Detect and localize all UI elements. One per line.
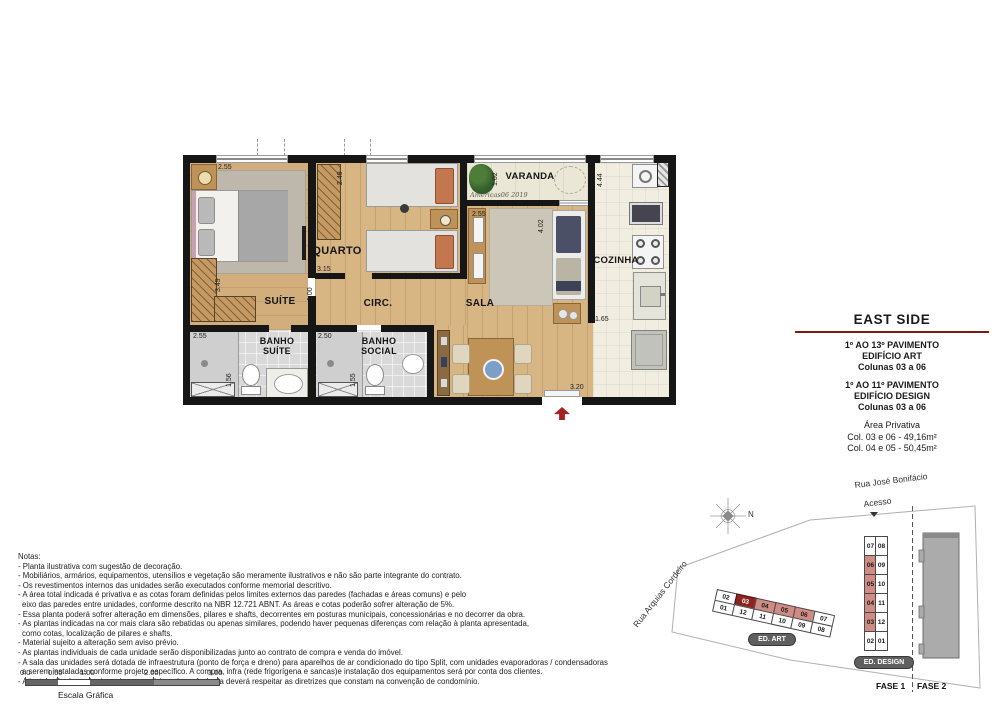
- projection-line: [257, 139, 258, 156]
- phase2-label: FASE 2: [917, 681, 946, 691]
- dim-quarto-depth: 3.15: [317, 266, 331, 273]
- dim-banho-suite-depth: 1.56: [226, 367, 233, 387]
- page-title: EAST SIDE: [793, 312, 991, 327]
- unit-cell: 09: [875, 555, 888, 575]
- note-line: como cotas, localização de pilares e sha…: [18, 629, 628, 639]
- entrance-door: [544, 390, 580, 397]
- wall: [427, 325, 434, 398]
- toilet: [366, 364, 384, 386]
- dim-banho-social-width: 2.50: [318, 333, 332, 340]
- ed-design-building: 07 06 05 04 03 02 08 09 10 11 12 01: [864, 536, 887, 650]
- wall: [183, 397, 676, 405]
- note-line: - Material sujeito a alteração sem aviso…: [18, 638, 628, 648]
- ed-design-label: ED. DESIGN: [854, 656, 914, 669]
- fase2-building: [919, 533, 959, 658]
- note-line: - Essa planta poderá sofrer alteração em…: [18, 610, 628, 620]
- note-line: - As plantas indicadas na cor mais clara…: [18, 619, 628, 629]
- note-line: - Planta ilustrativa com sugestão de dec…: [18, 562, 628, 572]
- sala-tv-console: [468, 208, 486, 284]
- vanity: [266, 368, 308, 398]
- title-rule: [795, 331, 989, 333]
- room-label-circ: CIRC.: [358, 298, 398, 310]
- window: [216, 155, 288, 163]
- round-sink: [402, 354, 424, 374]
- wall: [291, 325, 357, 332]
- building1-name: EDIFÍCIO ART: [793, 351, 991, 362]
- ed-art-label: ED. ART: [748, 633, 796, 646]
- dim-suite-depth: 3.49: [215, 272, 222, 292]
- scale-bar: 0.0 0.50 1.00 2.00 3.00 Escala Gráfica: [18, 668, 248, 704]
- note-line: - A sala das unidades será dotada de inf…: [18, 658, 628, 668]
- notes-heading: Notas:: [18, 552, 628, 562]
- dining-chair: [452, 374, 470, 394]
- quarto-nightstand: [430, 209, 458, 229]
- window: [366, 155, 408, 163]
- dim-banho-social-depth: 1.55: [350, 367, 357, 387]
- room-label-banho-suite: BANHO SUÍTE: [248, 336, 306, 357]
- scale-tick-label: 3.00: [208, 668, 223, 677]
- wall: [460, 155, 467, 279]
- wall: [467, 200, 559, 206]
- wall: [183, 325, 269, 332]
- note-line: eixo das paredes entre unidades, conform…: [18, 600, 628, 610]
- area-privativa-title: Área Privativa: [793, 420, 991, 432]
- building1-pavimento: 1º AO 13º PAVIMENTO: [793, 340, 991, 351]
- dim-cozinha-depth: 4.44: [597, 167, 604, 187]
- page: Americas06 2019: [0, 0, 1000, 707]
- illustration-signature: Americas06 2019: [470, 191, 528, 199]
- compass-icon: [710, 498, 746, 534]
- scale-tick-label: 0.0: [20, 668, 30, 677]
- unit-cell: 01: [875, 631, 888, 651]
- note-line: - As plantas individuais de cada unidade…: [18, 648, 628, 658]
- building2-colunas: Colunas 03 a 06: [793, 402, 991, 413]
- dining-table: [468, 338, 514, 396]
- site-map: Rua José Bonifácio Acesso Rua Arquias Co…: [620, 478, 1000, 707]
- unit-cell: 12: [875, 612, 888, 632]
- entrance-gap: [542, 397, 582, 405]
- dim-quarto-width: 2.49: [337, 165, 344, 185]
- wall: [308, 330, 316, 398]
- varanda-railing: [474, 155, 586, 163]
- shower-glass: [238, 332, 239, 398]
- scale-tick-label: 1.00: [80, 668, 95, 677]
- building1-colunas: Colunas 03 a 06: [793, 362, 991, 373]
- note-line: - Mobiliários, armários, equipamentos, u…: [18, 571, 628, 581]
- unit-cell: 11: [875, 593, 888, 613]
- toilet-tank: [365, 386, 385, 395]
- shower-head-icon: [201, 360, 208, 367]
- dim-varanda-depth: 1.02: [492, 166, 499, 186]
- dim-entrada: 3.20: [570, 384, 584, 391]
- toilet-tank: [241, 386, 261, 395]
- sala-sofa: [552, 210, 586, 300]
- quarto-bed-1: [366, 163, 458, 207]
- entrance-arrow-icon: [554, 407, 570, 420]
- wall: [308, 160, 316, 278]
- scale-tick-label: 0.50: [48, 668, 63, 677]
- scale-bar-label: Escala Gráfica: [58, 690, 113, 700]
- window: [600, 155, 654, 163]
- suite-bed: [191, 190, 288, 262]
- building2-pavimento: 1º AO 11º PAVIMENTO: [793, 380, 991, 391]
- room-label-banho-social: BANHO SOCIAL: [348, 336, 410, 357]
- shower-head-icon: [327, 360, 334, 367]
- washer: [632, 164, 658, 188]
- wall: [372, 273, 460, 279]
- dim-sala-width: 2.55: [472, 211, 486, 218]
- fridge: [630, 203, 662, 224]
- phase1-label: FASE 1: [876, 681, 905, 691]
- dining-chair: [452, 344, 470, 364]
- room-label-varanda: VARANDA: [500, 172, 560, 183]
- wall: [669, 155, 676, 405]
- north-label: N: [748, 510, 754, 519]
- kitchen-sink: [633, 272, 666, 320]
- suite-nightstand: [191, 164, 217, 190]
- dining-chair: [514, 374, 532, 394]
- wall: [381, 325, 433, 332]
- scale-bar-strip: [25, 679, 220, 686]
- quarto-floor-lamp: [400, 204, 409, 213]
- projection-line: [370, 139, 371, 156]
- note-line: - Os revestimentos internos das unidades…: [18, 581, 628, 591]
- dim-suite-width: 2.55: [218, 164, 232, 171]
- notes: Notas: - Planta ilustrativa com sugestão…: [18, 552, 628, 686]
- unit-cell: 10: [875, 574, 888, 594]
- quarto-bed-2: [366, 230, 458, 272]
- dim-sala-depth: 4.02: [538, 213, 545, 233]
- wall: [588, 155, 595, 323]
- building2-name: EDIFÍCIO DESIGN: [793, 391, 991, 402]
- toilet: [242, 364, 260, 386]
- hall-sideboard: [437, 330, 450, 396]
- room-label-suite: SUÍTE: [250, 296, 310, 308]
- room-label-sala: SALA: [455, 298, 505, 310]
- dining-chair: [514, 344, 532, 364]
- wall: [315, 273, 345, 279]
- area-col-04-05: Col. 04 e 05 - 50,45m²: [793, 443, 991, 455]
- scale-tick-label: 2.00: [144, 668, 159, 677]
- unit-cell: 08: [875, 536, 888, 556]
- dim-banho-suite-width: 2.55: [193, 333, 207, 340]
- area-col-03-06: Col. 03 e 06 - 49,16m²: [793, 432, 991, 444]
- projection-line: [284, 139, 285, 156]
- site-map-drawing: [620, 478, 1000, 707]
- dim-circ-width: 1.00: [307, 281, 314, 301]
- wall: [183, 155, 190, 405]
- kitchen-counter: [631, 330, 667, 370]
- room-label-cozinha: COZINHA: [590, 256, 642, 267]
- sala-side-table: [553, 303, 581, 324]
- room-label-quarto: QUARTO: [306, 245, 368, 258]
- projection-line: [344, 139, 345, 156]
- note-line: - A área total indicada é privativa e as…: [18, 590, 628, 600]
- dim-cozinha-width: 1.65: [595, 316, 609, 323]
- title-block: EAST SIDE 1º AO 13º PAVIMENTO EDIFÍCIO A…: [793, 312, 991, 455]
